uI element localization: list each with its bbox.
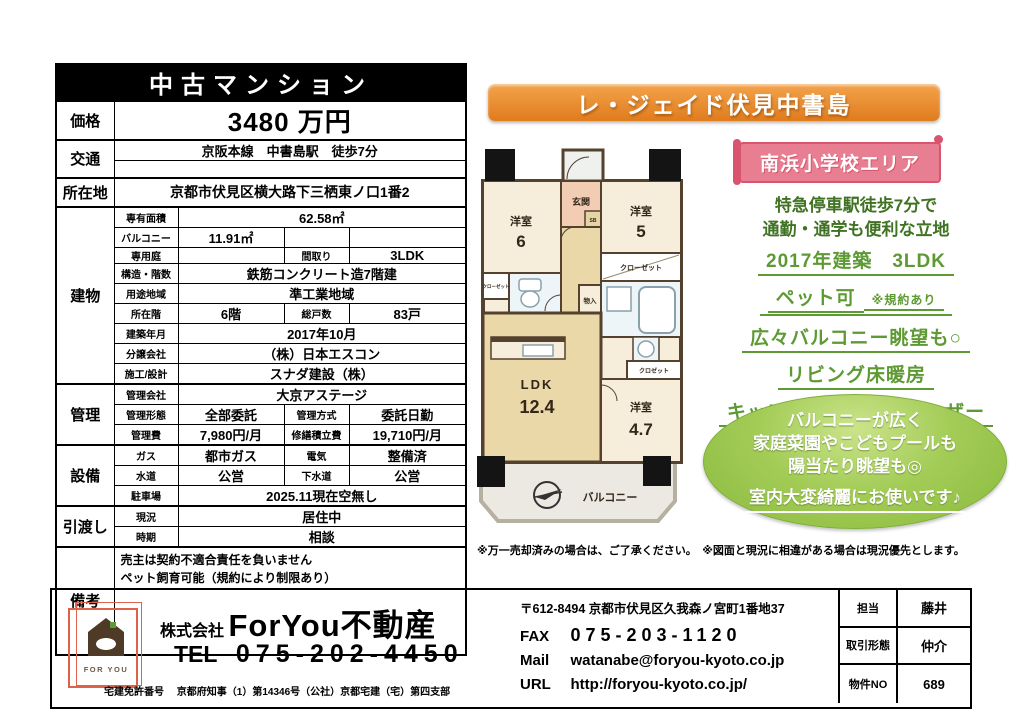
area-value: 62.58㎡ [178, 207, 466, 228]
sewer-value: 公営 [349, 465, 466, 485]
flyer-page: 中古マンション 価格 3480 万円 交通 京阪本線 中書島駅 徒歩7分 所在地… [0, 0, 1024, 728]
catch-line2: 通勤・通学も便利な立地 [700, 218, 1012, 242]
bathtub [639, 287, 675, 333]
url-value: http://foryou-kyoto.co.jp/ [570, 676, 747, 693]
oval-line3: 陽当たり眺望も◎ [788, 456, 922, 479]
fax-line: FAX 075-203-1120 [520, 625, 820, 646]
company-prefix: 株式会社 [160, 623, 224, 640]
tel-number: 075-202-4450 [236, 640, 464, 668]
label-closet1: クローゼット [620, 263, 662, 272]
builder-value: スナダ建設（株） [178, 363, 466, 384]
remarks-line1: 売主は契約不適合責任を負いません [121, 553, 313, 567]
pet-note: ※規約あり [864, 291, 945, 311]
label-sb: SB [590, 218, 597, 224]
deal-value: 仲介 [898, 628, 970, 666]
oval-line4: 室内大変綺麗にお使いです♪ [745, 487, 965, 513]
floor-label: 所在階 [114, 303, 178, 323]
built-value: 2017年10月 [178, 323, 466, 343]
label-room5-name: 洋室 [630, 204, 652, 218]
floor-value: 6階 [178, 303, 284, 323]
catch-copy: 特急停車駅徒歩7分で 通勤・通学も便利な立地 [700, 194, 1012, 242]
building-name-banner: レ・ジェイド伏見中書島 [488, 84, 940, 121]
mgmt-company-value: 大京アステージ [178, 384, 466, 405]
water-value: 公営 [178, 465, 284, 485]
label-ldk-size: 12.4 [519, 397, 554, 417]
agent-info-table: 担当 藤井 取引形態 仲介 物件NO 689 [838, 590, 970, 703]
pillar-top-left [485, 149, 515, 181]
school-area-text: 南浜小学校エリア [760, 149, 920, 176]
parking-value: 2025.11現在空無し [178, 485, 466, 506]
balcony-value: 11.91㎡ [178, 227, 284, 247]
electric-label: 電気 [284, 445, 349, 466]
price-value: 3480 万円 [114, 101, 466, 140]
seller-label: 分譲会社 [114, 343, 178, 363]
fax-number: 075-203-1120 [570, 625, 741, 645]
access-value: 京阪本線 中書島駅 徒歩7分 [114, 140, 466, 161]
company-name: ForYou不動産 [228, 608, 436, 643]
label-room47-size: 4.7 [629, 420, 653, 439]
label-room47-name: 洋室 [630, 400, 652, 414]
garden-label: 専用庭 [114, 247, 178, 263]
label-storage: 物入 [584, 296, 598, 305]
label-room6-size: 6 [516, 232, 525, 251]
feature-item: 2017年建築 3LDK [688, 246, 1024, 276]
label-closet3: クロゼット [639, 367, 669, 375]
units-value: 83戸 [349, 303, 466, 323]
floorplan: 玄関 SB 洋室 6 洋室 5 クローゼット クローゼット 物入 LDK 12.… [475, 145, 690, 535]
timing-label: 時期 [114, 526, 178, 547]
url-label: URL [520, 676, 566, 693]
company-logo: FOR YOU [66, 600, 146, 692]
feature-item: ペット可※規約あり [688, 283, 1024, 316]
license-value: 京都府知事（1）第14346号（公社）京都宅建（宅）第四支部 [177, 687, 450, 698]
url-line: URL http://foryou-kyoto.co.jp/ [520, 676, 820, 694]
structure-value: 鉄筋コンクリート造7階建 [178, 263, 466, 283]
toilet-bowl [521, 291, 539, 307]
balcony-label: バルコニー [114, 227, 178, 247]
balcony-empty1 [284, 227, 349, 247]
kitchen-sink [523, 345, 553, 356]
zoning-label: 用途地域 [114, 283, 178, 303]
reserve-label: 修繕積立費 [284, 424, 349, 445]
zoning-value: 準工業地域 [178, 283, 466, 303]
label-ldk-name: LDK [521, 377, 554, 392]
seller-value: （株）日本エスコン [178, 343, 466, 363]
building-name: レ・ジェイド伏見中書島 [577, 86, 852, 120]
builder-label: 施工/設計 [114, 363, 178, 384]
oval-line1: バルコニーが広く [787, 410, 923, 433]
license-line: 宅建免許番号 京都府知事（1）第14346号（公社）京都宅建（宅）第四支部 [104, 683, 460, 698]
postal-address: 〒612-8494 京都市伏見区久我森ノ宮町1番地37 [520, 598, 820, 617]
status-label: 現況 [114, 506, 178, 527]
handover-section-label: 引渡し [56, 506, 114, 547]
remarks-line2: ペット飼育可能（規約により制限あり） [121, 571, 337, 585]
location-label: 所在地 [56, 178, 114, 207]
building-section-label: 建物 [56, 207, 114, 384]
mgmt-form-value: 全部委託 [178, 404, 284, 424]
rep-value: 藤井 [898, 590, 970, 628]
highlight-oval: バルコニーが広く 家庭菜園やこどもプールも 陽当たり眺望も◎ 室内大変綺麗にお使… [703, 394, 1007, 529]
toilet-tank [519, 279, 541, 291]
mail-value: watanabe@foryou-kyoto.co.jp [570, 652, 784, 669]
pillar-top-right [649, 149, 681, 181]
property-spec-table: 中古マンション 価格 3480 万円 交通 京阪本線 中書島駅 徒歩7分 所在地… [55, 63, 467, 656]
mgmt-method-label: 管理方式 [284, 404, 349, 424]
table-title: 中古マンション [56, 64, 466, 101]
feature-item: リビング床暖房 [688, 360, 1024, 390]
catch-line1: 特急停車駅徒歩7分で [700, 194, 1012, 218]
reserve-value: 19,710円/月 [349, 424, 466, 445]
access-label: 交通 [56, 140, 114, 178]
label-room6-name: 洋室 [510, 214, 532, 228]
water-label: 水道 [114, 465, 178, 485]
kitchen-edge [491, 337, 565, 342]
status-value: 居住中 [178, 506, 466, 527]
garden-value [178, 247, 284, 263]
license-label: 宅建免許番号 [104, 687, 164, 698]
mgmt-fee-label: 管理費 [114, 424, 178, 445]
property-no-label: 物件NO [840, 665, 898, 703]
parking-label: 駐車場 [114, 485, 178, 506]
label-closet2: クローゼット [483, 283, 510, 290]
mgmt-form-label: 管理形態 [114, 404, 178, 424]
mgmt-method-value: 委託日勤 [349, 404, 466, 424]
mgmt-company-label: 管理会社 [114, 384, 178, 405]
porch [563, 150, 603, 181]
layout-label: 間取り [284, 247, 349, 263]
company-name-line: 株式会社 ForYou不動産 [160, 600, 437, 645]
washbasin-bowl [638, 341, 654, 357]
units-label: 総戸数 [284, 303, 349, 323]
built-label: 建築年月 [114, 323, 178, 343]
timing-value: 相談 [178, 526, 466, 547]
contact-block: 〒612-8494 京都市伏見区久我森ノ宮町1番地37 FAX 075-203-… [520, 598, 820, 700]
feature-item: 広々バルコニー眺望も○ [688, 323, 1024, 353]
area-label: 専有面積 [114, 207, 178, 228]
balcony-empty2 [349, 227, 466, 247]
pillar-bottom-right [643, 456, 671, 486]
gas-label: ガス [114, 445, 178, 466]
footer-box: FOR YOU 株式会社 ForYou不動産 TEL 075-202-4450 … [50, 588, 972, 709]
tel-label: TEL [174, 641, 217, 667]
price-label: 価格 [56, 101, 114, 140]
logo-text: FOR YOU [84, 665, 129, 674]
access-empty [114, 161, 466, 178]
property-no-value: 689 [898, 665, 970, 703]
washer [607, 287, 631, 311]
sewer-label: 下水道 [284, 465, 349, 485]
label-room5-size: 5 [636, 222, 645, 241]
layout-value: 3LDK [349, 247, 466, 263]
label-balcony: バルコニー [583, 491, 638, 504]
gas-value: 都市ガス [178, 445, 284, 466]
school-area-banner: 南浜小学校エリア [739, 142, 941, 183]
oval-line2: 家庭菜園やこどもプールも [753, 433, 957, 456]
rep-label: 担当 [840, 590, 898, 628]
fax-label: FAX [520, 628, 566, 645]
location-value: 京都市伏見区横大路下三栖東ノ口1番2 [114, 178, 466, 207]
management-section-label: 管理 [56, 384, 114, 445]
label-entrance: 玄関 [572, 196, 590, 207]
mgmt-fee-value: 7,980円/月 [178, 424, 284, 445]
pillar-bottom-left [477, 456, 505, 487]
electric-value: 整備済 [349, 445, 466, 466]
disclaimer-text: ※万一売却済みの場合は、ご了承ください。 ※図面と現況に相違がある場合は現況優先… [477, 542, 965, 558]
deal-label: 取引形態 [840, 628, 898, 666]
structure-label: 構造・階数 [114, 263, 178, 283]
mail-label: Mail [520, 652, 566, 669]
tel-line: TEL 075-202-4450 [174, 640, 464, 669]
facilities-section-label: 設備 [56, 445, 114, 506]
house-icon: FOR YOU [80, 610, 132, 682]
mail-line: Mail watanabe@foryou-kyoto.co.jp [520, 652, 820, 670]
